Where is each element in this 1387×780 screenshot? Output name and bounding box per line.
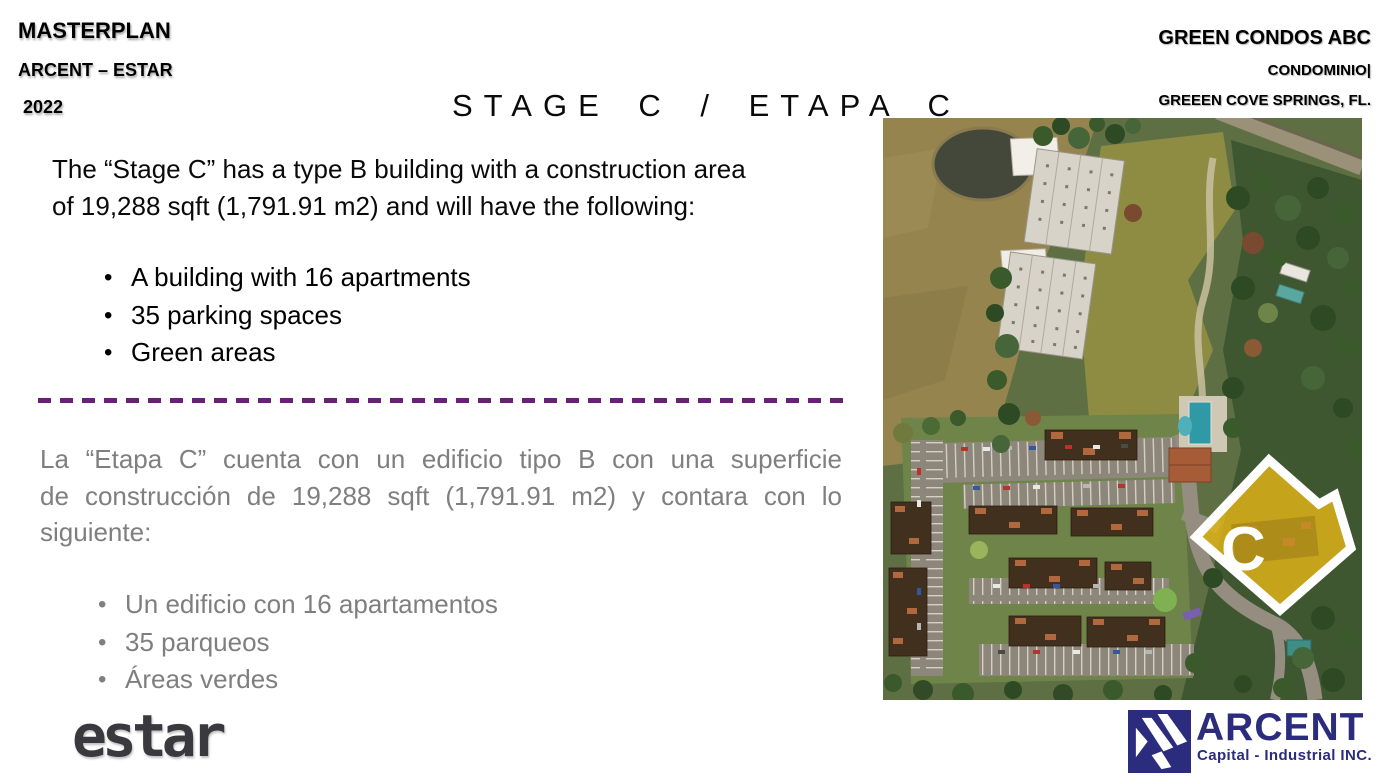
arcent-logo-icon	[1128, 710, 1191, 773]
spanish-description: La “Etapa C” cuenta con un edificio tipo…	[40, 441, 842, 551]
arcent-logo-subtitle: Capital - Industrial INC.	[1197, 747, 1372, 764]
clubhouse	[1169, 448, 1211, 482]
bullet-item: 35 parking spaces	[104, 297, 471, 335]
pool-area	[1178, 396, 1227, 452]
project-location: GREEEN COVE SPRINGS, FL.	[1158, 92, 1371, 109]
english-description-line: of 19,288 sqft (1,791.91 m2) and will ha…	[52, 188, 867, 225]
masterplan-title: MASTERPLAN	[18, 18, 171, 44]
site-plan-image: C	[883, 118, 1362, 700]
masterplan-subtitle: ARCENT – ESTAR	[18, 60, 173, 81]
bullet-item: Áreas verdes	[98, 661, 498, 699]
arcent-logo-text: ARCENT	[1196, 706, 1365, 750]
english-description-line: The “Stage C” has a type B building with…	[52, 151, 867, 188]
estar-logo: estar	[72, 702, 222, 770]
english-description: The “Stage C” has a type B building with…	[52, 151, 867, 225]
arcent-logo: ARCENT Capital - Industrial INC.	[1128, 710, 1363, 776]
bullet-item: Un edificio con 16 apartamentos	[98, 586, 498, 624]
project-name: GREEN CONDOS ABC	[1158, 27, 1371, 50]
park-circle	[970, 541, 988, 559]
spanish-description-line: La “Etapa C” cuenta con un edificio tipo…	[40, 441, 842, 478]
dashed-divider-line	[38, 398, 846, 403]
bullet-item: Green areas	[104, 334, 471, 372]
stage-c-label: C	[1221, 515, 1266, 584]
project-type: CONDOMINIO|	[1268, 62, 1371, 79]
playground	[1153, 588, 1177, 612]
spanish-description-line: siguiente:	[40, 514, 842, 551]
bullet-item: 35 parqueos	[98, 624, 498, 662]
masterplan-year: 2022	[23, 97, 63, 118]
bullet-list-english: A building with 16 apartments 35 parking…	[104, 259, 471, 372]
bullet-list-spanish: Un edificio con 16 apartamentos 35 parqu…	[98, 586, 498, 699]
spanish-description-line: de construcción de 19,288 sqft (1,791.91…	[40, 478, 842, 515]
slide: MASTERPLAN ARCENT – ESTAR 2022 GREEN CON…	[0, 0, 1387, 780]
bullet-item: A building with 16 apartments	[104, 259, 471, 297]
